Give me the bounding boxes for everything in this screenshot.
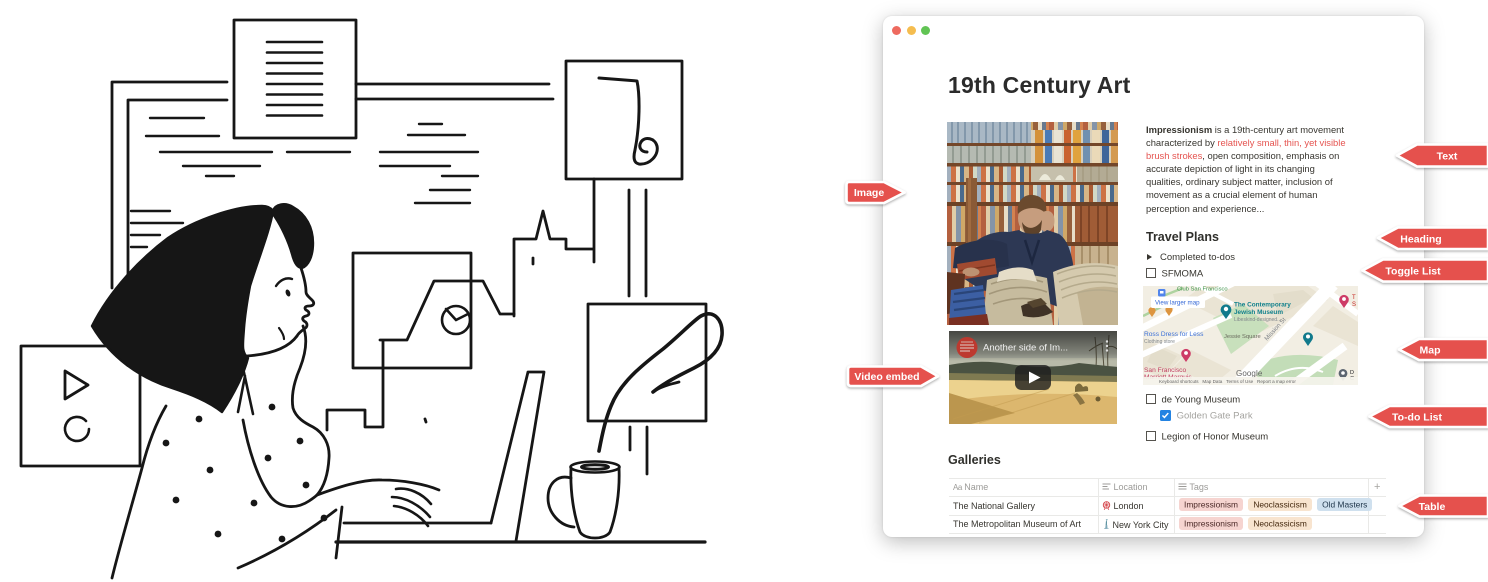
svg-text:Toggle List: Toggle List	[1385, 266, 1441, 278]
svg-text:Keyboard shortcuts Map Data: Keyboard shortcuts Map Data Terms of Use…	[1159, 379, 1296, 384]
svg-text:Heading: Heading	[1400, 233, 1441, 245]
svg-text:Jessie Square: Jessie Square	[1224, 334, 1261, 340]
svg-text:Map: Map	[1420, 345, 1441, 357]
svg-text:Table: Table	[1419, 501, 1446, 513]
svg-text:Another side of Im...: Another side of Im...	[983, 343, 1068, 354]
svg-text:T: T	[1352, 295, 1356, 301]
svg-text:To-do List: To-do List	[1392, 412, 1442, 424]
svg-text:Ross Dress for Less: Ross Dress for Less	[1144, 331, 1204, 338]
svg-text:View larger map: View larger map	[1155, 300, 1200, 307]
svg-text:Video embed: Video embed	[854, 371, 919, 383]
svg-text:The Contemporary: The Contemporary	[1234, 302, 1291, 309]
svg-text:Clothing store: Clothing store	[1144, 339, 1175, 345]
svg-text:Google: Google	[1236, 369, 1263, 378]
svg-text:San Francisco: San Francisco	[1144, 367, 1186, 374]
svg-text:Text: Text	[1437, 151, 1458, 163]
svg-text:S: S	[1352, 302, 1356, 308]
svg-text:Libeskind-designed...: Libeskind-designed...	[1234, 317, 1281, 323]
svg-text:Club San Francisco: Club San Francisco	[1177, 287, 1228, 293]
svg-text:Image: Image	[854, 187, 885, 199]
svg-text:Jewish Museum: Jewish Museum	[1234, 309, 1283, 316]
